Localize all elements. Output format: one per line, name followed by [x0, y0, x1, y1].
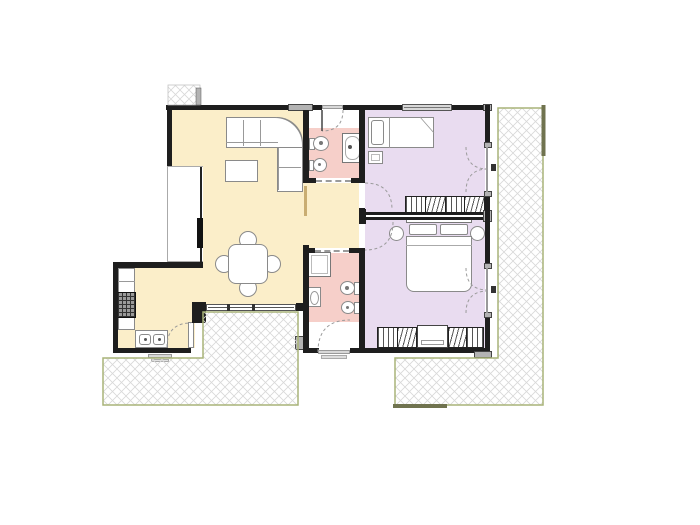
cooktop — [117, 292, 136, 318]
shower-inner — [311, 255, 328, 274]
terrace-steps — [148, 354, 172, 358]
wall-segment — [361, 209, 366, 224]
partition-wall-line — [365, 212, 485, 215]
wardrobe-section — [445, 197, 465, 212]
wardrobe-section — [406, 197, 425, 212]
wall-segment — [303, 110, 309, 183]
bed-pillow — [371, 120, 384, 145]
wall-segment — [113, 262, 118, 353]
entrance-threshold — [322, 105, 343, 109]
wall-segment — [485, 192, 490, 268]
door-mark — [491, 164, 496, 171]
hallway-floor — [303, 183, 359, 248]
dining-table — [228, 244, 268, 284]
wall-segment — [485, 313, 490, 353]
window-glass-line — [208, 307, 294, 308]
wardrobe — [448, 327, 484, 348]
nightstand-lamp — [470, 226, 485, 241]
washbasin-bowl — [310, 291, 319, 305]
terrace-steps — [151, 359, 169, 362]
coffee-table — [225, 160, 258, 182]
bed-pillow — [440, 224, 468, 235]
wall-segment — [349, 248, 362, 253]
window-niche-line — [167, 166, 203, 167]
nightstand-inner — [371, 154, 380, 161]
wardrobe — [377, 327, 417, 348]
wall-segment — [303, 348, 319, 353]
toilet-dot — [319, 141, 323, 145]
corner-sofa — [226, 117, 303, 148]
sofa-cushion-line — [279, 167, 301, 168]
french-door-sill — [486, 268, 488, 313]
wall-pillar — [192, 302, 206, 323]
sink-faucet-dot — [158, 338, 161, 341]
sofa-cushion-line — [278, 148, 279, 190]
paving-post — [196, 88, 201, 105]
wall-segment — [308, 248, 315, 253]
wardrobe-section — [449, 328, 466, 347]
wardrobe-section — [466, 328, 484, 347]
wall-segment — [350, 348, 490, 353]
bathroom-2-sliding-door — [315, 250, 349, 252]
window-niche-edge — [167, 167, 168, 262]
sliding-panel — [197, 218, 203, 248]
toilet-dot — [345, 286, 349, 290]
wall-segment — [113, 262, 203, 268]
paving-patch-top — [168, 85, 200, 105]
window-post — [252, 304, 255, 311]
bed-blanket-line — [389, 117, 390, 148]
nightstand-lamp — [389, 226, 404, 241]
sofa-cushion-line — [226, 142, 278, 143]
bed-blanket-line — [406, 245, 472, 246]
counter-divider — [118, 281, 135, 282]
door-mark — [491, 286, 496, 293]
sink-faucet-dot — [144, 338, 147, 341]
bidet-dot — [318, 163, 321, 166]
rear-door-step — [321, 355, 347, 359]
bathtub-inner — [345, 136, 360, 160]
bathtub-drain — [348, 145, 352, 149]
wardrobe-section — [378, 328, 397, 347]
kitchen-door-leaf — [188, 322, 194, 348]
bidet-dot — [346, 306, 349, 309]
pocket-door — [304, 186, 307, 216]
wall-block — [474, 351, 492, 358]
wall-segment — [113, 348, 191, 353]
wall-block — [288, 104, 313, 111]
dresser-inner — [421, 340, 444, 345]
rear-door-threshold — [318, 350, 350, 354]
french-door-sill — [486, 147, 488, 192]
wall-segment — [359, 110, 365, 183]
floor-plan — [0, 0, 700, 525]
wall-segment — [359, 248, 365, 353]
rear-exit-door-arc — [318, 320, 350, 352]
wall-segment — [303, 245, 309, 353]
wardrobe-section — [425, 197, 445, 212]
wall-segment — [167, 105, 172, 167]
bed-pillow — [409, 224, 437, 235]
bathroom-1-sliding-door — [316, 180, 351, 182]
wall-segment — [351, 178, 362, 183]
window-glass-line — [404, 107, 450, 108]
wardrobe — [405, 196, 485, 213]
window-post — [227, 304, 230, 311]
wall-segment — [308, 178, 316, 183]
wardrobe-section — [464, 197, 484, 212]
wall-segment — [485, 105, 490, 147]
wardrobe-section — [397, 328, 417, 347]
partition-wall-line — [365, 217, 485, 220]
